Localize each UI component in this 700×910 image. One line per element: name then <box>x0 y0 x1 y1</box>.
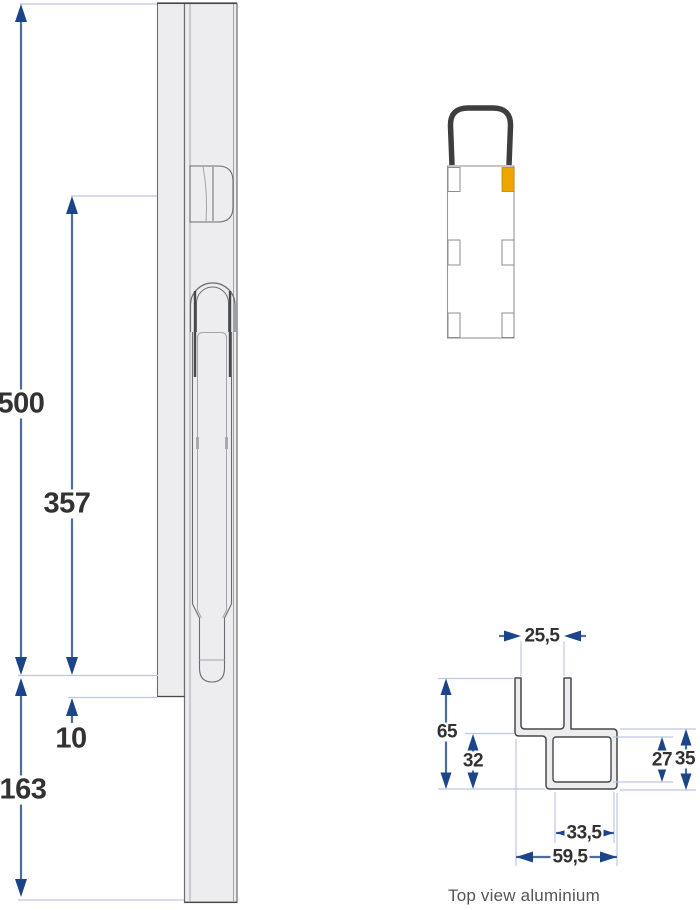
top-view-cutout <box>448 240 460 265</box>
technical-drawing-flush-bolt: 500 357 10 163 25,5 65 32 27 35 33,5 59,… <box>0 0 700 910</box>
cross-section-profile <box>515 678 617 789</box>
dim-59-5-label: 59,5 <box>551 848 590 867</box>
dim-33-5-label: 33,5 <box>565 824 604 843</box>
top-view-cutout <box>502 240 514 265</box>
dim-500-label: 500 <box>0 390 46 419</box>
top-view-cutout <box>502 313 514 338</box>
top-view-cutout <box>448 313 460 338</box>
dim-32-label: 32 <box>461 752 485 771</box>
dim-35-label: 35 <box>673 750 697 769</box>
orange-slider <box>502 168 514 192</box>
latch-block <box>190 166 233 222</box>
tube-cavity <box>553 737 611 782</box>
cross-section-caption: Top view aluminium <box>448 886 600 906</box>
dim-27-label: 27 <box>650 751 674 770</box>
top-view <box>448 108 515 338</box>
handle-bracket <box>450 108 510 165</box>
top-view-cutout <box>448 168 460 192</box>
drawing-canvas <box>0 0 700 910</box>
dim-163-label: 163 <box>0 776 48 805</box>
dim-357-label: 357 <box>42 490 93 519</box>
dim-25-5-label: 25,5 <box>523 627 562 646</box>
dim-65-label: 65 <box>435 723 459 742</box>
back-rail <box>158 4 185 697</box>
dim-10-label: 10 <box>53 725 88 754</box>
side-view-profile <box>157 3 237 902</box>
